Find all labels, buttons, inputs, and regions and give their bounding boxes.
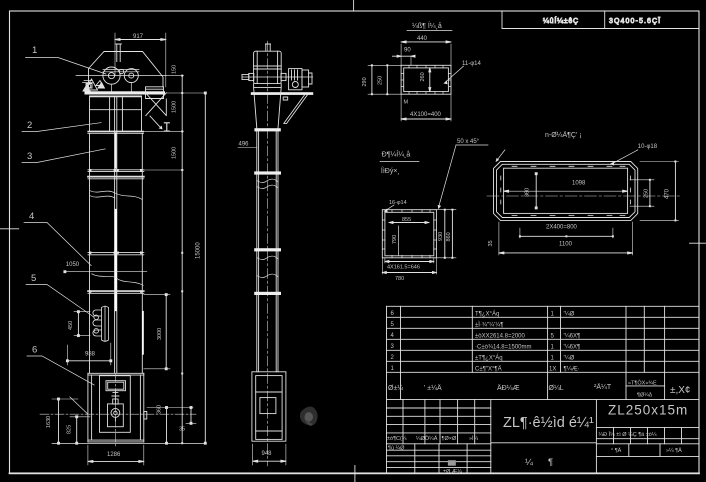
svg-text:6: 6: [32, 345, 37, 356]
svg-text:±Ì·¾"¼'¼¶: ±Ì·¾"¼'¼¶: [475, 322, 503, 329]
svg-text:±òXX2614.8=2000: ±òXX2614.8=2000: [475, 334, 526, 340]
svg-text:¶: ¶: [548, 457, 553, 468]
svg-text:15000: 15000: [196, 242, 202, 259]
svg-text:° ¶Ä: ° ¶Ä: [611, 447, 622, 454]
svg-text:988: 988: [85, 352, 96, 358]
svg-text:3Q400-5.6ÇÏ: 3Q400-5.6ÇÏ: [609, 17, 661, 25]
svg-text:496: 496: [239, 142, 250, 148]
svg-text:ZL250x15m: ZL250x15m: [608, 403, 688, 418]
svg-text:¼Ð Î¼ ±ì Ø ¼Ç ¶ä ±ò¼: ¼Ð Î¼ ±ì Ø ¼Ç ¶ä ±ò¼: [599, 431, 657, 438]
svg-text:¼ûÍ¼±êÇ: ¼ûÍ¼±êÇ: [543, 16, 579, 25]
svg-text:4X161.5=646: 4X161.5=646: [387, 265, 420, 271]
svg-text:¼ØÒ¼Ä: ¼ØÒ¼Ä: [416, 435, 438, 442]
svg-text:2X400=800: 2X400=800: [546, 225, 578, 231]
svg-text:360: 360: [525, 188, 531, 197]
svg-text:260: 260: [420, 72, 426, 81]
svg-text:¼ß¶ Í¼¸å: ¼ß¶ Í¼¸å: [412, 21, 442, 30]
svg-text:250: 250: [378, 76, 384, 85]
svg-text:35: 35: [488, 240, 494, 246]
svg-text:3000: 3000: [157, 328, 163, 340]
svg-text:' ±¼Ä: ' ±¼Ä: [424, 384, 442, 392]
svg-text:1630: 1630: [46, 416, 52, 428]
svg-text:1098: 1098: [572, 181, 586, 187]
svg-text:¶¼Æ·: ¶¼Æ·: [564, 367, 580, 373]
svg-text:360: 360: [157, 405, 163, 414]
svg-text:»¼ ¶Ä: »¼ ¶Ä: [666, 447, 682, 454]
svg-text:Ð¶¼Í¼¸å: Ð¶¼Í¼¸å: [382, 150, 411, 159]
svg-text:860: 860: [446, 232, 452, 241]
svg-text:790: 790: [392, 235, 398, 244]
svg-text:3: 3: [27, 151, 32, 162]
svg-text:290: 290: [362, 77, 368, 86]
svg-text:²Ä¼T: ²Ä¼T: [594, 383, 612, 391]
svg-text:¼: ¼: [525, 457, 534, 468]
svg-text:1286: 1286: [107, 452, 121, 458]
svg-text:1: 1: [32, 45, 37, 56]
svg-text:'¼6X¶: '¼6X¶: [564, 334, 581, 340]
svg-text:50 x 45°: 50 x 45°: [457, 139, 480, 145]
svg-text:2: 2: [27, 120, 32, 131]
svg-text:930: 930: [438, 232, 444, 241]
svg-text:¶Ø×Ø: ¶Ø×Ø: [442, 436, 457, 442]
svg-text:ÍìÐý×¸: ÍìÐý×¸: [381, 166, 400, 175]
svg-text:780: 780: [395, 276, 404, 282]
svg-text:4: 4: [29, 211, 34, 222]
svg-text:1100: 1100: [559, 242, 573, 248]
svg-text:ZL¶·ê½ìd é¼¹: ZL¶·ê½ìd é¼¹: [503, 415, 594, 431]
svg-text:10-φ18: 10-φ18: [638, 144, 658, 150]
svg-text:M: M: [404, 100, 409, 106]
svg-text:250: 250: [644, 189, 650, 198]
svg-text:T¶¿X°Áq: T¶¿X°Áq: [475, 311, 499, 318]
svg-text:5: 5: [31, 273, 36, 284]
svg-text:±,X¢: ±,X¢: [670, 385, 691, 396]
svg-text:440: 440: [417, 36, 428, 42]
svg-text:»Ì¼: »Ì¼: [469, 435, 479, 442]
svg-text:'¼Ø: '¼Ø: [564, 356, 575, 362]
svg-text:¶ù ¼Ø: ¶ù ¼Ø: [388, 446, 405, 452]
svg-text:90: 90: [404, 48, 411, 54]
svg-text:ÄÐ¼Æ: ÄÐ¼Æ: [497, 384, 520, 392]
svg-text:1050: 1050: [66, 262, 80, 268]
svg-text:4X100=400: 4X100=400: [410, 112, 442, 118]
svg-text:n-Ø¼Ä¶Ç' ¡: n-Ø¼Ä¶Ç' ¡: [545, 131, 582, 139]
svg-text:1500: 1500: [172, 147, 178, 159]
svg-text:470: 470: [665, 188, 671, 199]
svg-text:C±¶"X°¶Ä: C±¶"X°¶Ä: [475, 366, 502, 373]
svg-text:1500: 1500: [172, 101, 178, 113]
svg-text:·C±ò¾14.8=1500mm: ·C±ò¾14.8=1500mm: [475, 345, 532, 351]
svg-text:'¼Ø: '¼Ø: [564, 312, 575, 318]
svg-text:948: 948: [262, 451, 273, 457]
svg-text:1X: 1X: [549, 367, 556, 373]
svg-text:«T¶ÒX«¾E: «T¶ÒX«¾E: [628, 380, 657, 387]
svg-text:Ø¼L: Ø¼L: [549, 385, 564, 392]
svg-text:16-φ14: 16-φ14: [389, 200, 407, 206]
svg-text:¶Ø¼å: ¶Ø¼å: [637, 392, 653, 399]
svg-text:'¼6X¶: '¼6X¶: [564, 345, 581, 351]
svg-text:825: 825: [67, 425, 73, 434]
svg-text:11-φ14: 11-φ14: [462, 61, 481, 67]
svg-text:±Ø Æ¼: ±Ø Æ¼: [443, 469, 462, 475]
svg-text:±ò¶C(¼: ±ò¶C(¼: [387, 436, 407, 442]
svg-text:±T¶¿X°Áq: ±T¶¿X°Áq: [475, 355, 503, 362]
svg-text:Ø±¼: Ø±¼: [388, 385, 403, 392]
svg-text:150: 150: [172, 65, 178, 74]
svg-text:450: 450: [68, 321, 74, 330]
